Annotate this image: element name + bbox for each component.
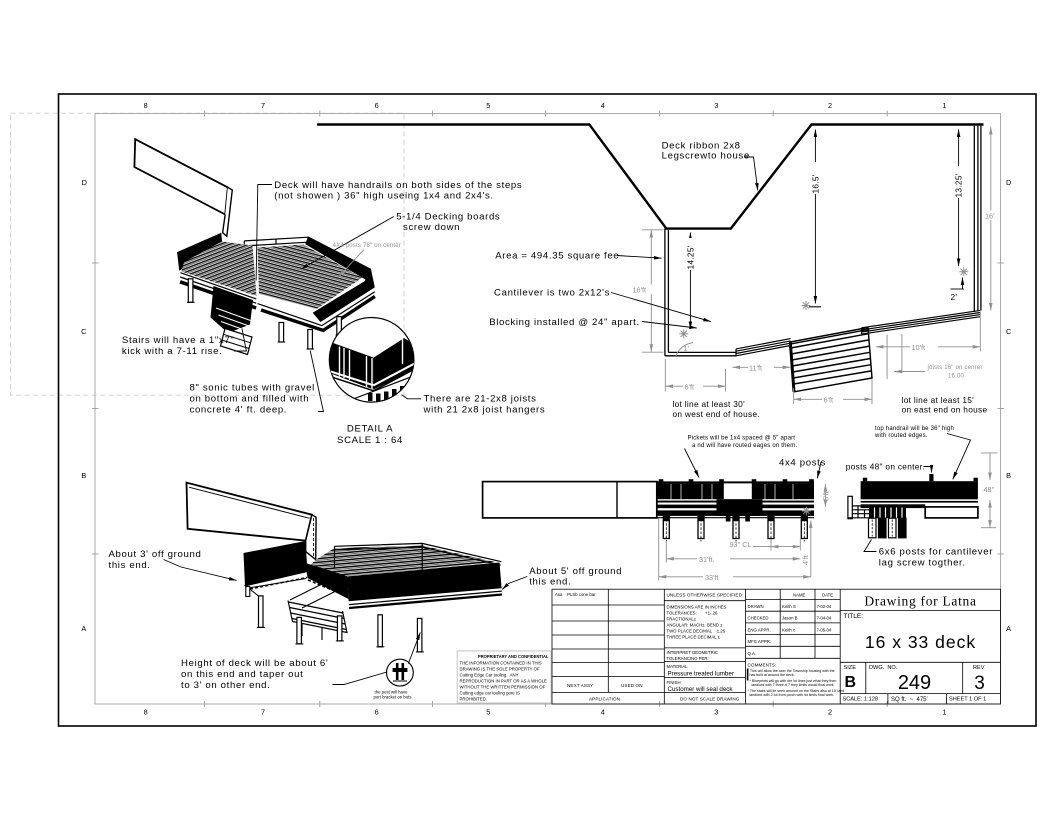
svg-text:port bracket on bots: port bracket on bots — [374, 695, 412, 700]
svg-text:WITHOUT THE WRITTEN PERMISSION: WITHOUT THE WRITTEN PERMISSION OF — [460, 684, 546, 689]
svg-text:16'ft: 16'ft — [633, 286, 647, 295]
svg-text:2': 2' — [951, 292, 958, 302]
svg-text:Stairs will have a 1"x7": Stairs will have a 1"x7" — [122, 335, 235, 346]
svg-text:Jason B: Jason B — [782, 616, 798, 621]
svg-text:screw down: screw down — [403, 222, 460, 233]
svg-text:Customer will seal deck: Customer will seal deck — [668, 686, 734, 693]
svg-text:5: 5 — [486, 708, 490, 717]
svg-text:REV: REV — [973, 665, 985, 671]
svg-text:to 3' on other end.: to 3' on other end. — [181, 680, 270, 691]
svg-text:16.5': 16.5' — [811, 174, 821, 193]
svg-text:1': 1' — [684, 344, 690, 353]
svg-text:48": 48" — [984, 485, 995, 494]
svg-text:DO NOT SCALE DRAWING: DO NOT SCALE DRAWING — [680, 697, 740, 702]
svg-text:Cantilever is two 2x12's: Cantilever is two 2x12's — [494, 288, 610, 299]
svg-text:NEXT ASSY: NEXT ASSY — [567, 683, 593, 688]
svg-text:Cutting edge car tooling gore: Cutting edge car tooling gore IS — [460, 690, 521, 695]
svg-text:DRAWING IS THE SOLE PROPERTY O: DRAWING IS THE SOLE PROPERTY OF — [460, 666, 540, 671]
svg-text:MFG APPR.: MFG APPR. — [748, 639, 771, 644]
svg-text:(not showen ) 36" high useing: (not showen ) 36" high useing 1x4 and 2x… — [274, 191, 493, 202]
svg-text:Keith c: Keith c — [782, 627, 796, 632]
svg-text:landlord with 2 lot front porc: landlord with 2 lot front porch with lot… — [748, 693, 835, 697]
svg-text:Q.A.: Q.A. — [748, 651, 757, 656]
svg-text:kick with a 7-11 rise.: kick with a 7-11 rise. — [122, 346, 222, 357]
svg-text:with 21 2x8 joist hangers: with 21 2x8 joist hangers — [423, 404, 546, 415]
svg-text:MATERIAL: MATERIAL — [667, 664, 689, 669]
svg-text:16': 16' — [985, 212, 995, 221]
svg-text:Legscrewto house: Legscrewto house — [662, 151, 750, 162]
svg-text:DATE: DATE — [822, 593, 833, 598]
svg-text:D: D — [82, 178, 87, 187]
svg-text:16 x 33 deck: 16 x 33 deck — [865, 632, 976, 652]
svg-text:About 5' off ground: About 5' off ground — [529, 566, 622, 577]
svg-text:lot line at least 15': lot line at least 15' — [902, 395, 975, 405]
svg-text:UNLESS OTHERWISE SPECIFIED:: UNLESS OTHERWISE SPECIFIED: — [667, 593, 744, 598]
svg-text:APPLICATION: APPLICATION — [589, 697, 620, 702]
svg-text:Pickets will be 1x4 spaced @ 5: Pickets will be 1x4 spaced @ 5" apart — [688, 436, 796, 442]
svg-text:TOLERANCES: +1-.26: TOLERANCES: +1-.26 — [667, 611, 719, 616]
svg-text:a nd will have routed eages on: a nd will have routed eages on them. — [692, 443, 797, 449]
svg-text:5-1/4 Decking boards: 5-1/4 Decking boards — [396, 211, 500, 222]
svg-text:posts 48" on center.: posts 48" on center. — [846, 461, 925, 471]
svg-text:1: 1 — [942, 101, 946, 110]
svg-text:Pressure treated lumber: Pressure treated lumber — [668, 671, 734, 678]
svg-text:TITLE:: TITLE: — [844, 613, 864, 620]
svg-text:with routed edges.: with routed edges. — [874, 433, 928, 439]
svg-text:the post will have: the post will have — [375, 689, 409, 694]
svg-text:3: 3 — [714, 101, 718, 110]
svg-text:8: 8 — [144, 101, 148, 110]
svg-text:SCALE 1 : 64: SCALE 1 : 64 — [337, 435, 403, 446]
svg-text:this end.: this end. — [109, 560, 151, 571]
svg-text:concrete 4' ft. deep.: concrete 4' ft. deep. — [190, 404, 288, 415]
svg-text:TOLERANCING PER:: TOLERANCING PER: — [667, 656, 709, 661]
svg-text:1: 1 — [942, 708, 946, 717]
svg-text:7: 7 — [261, 101, 265, 110]
svg-text:4'ft: 4'ft — [801, 555, 810, 565]
svg-text:Height of deck will be about 6: Height of deck will be about 6' — [181, 658, 328, 669]
svg-text:Deck will have handrails on bo: Deck will have handrails on both sides o… — [274, 180, 522, 191]
svg-text:Cutting Edge Car tooling. ANY: Cutting Edge Car tooling. ANY — [460, 672, 519, 677]
svg-text:SHEET 1 OF 1: SHEET 1 OF 1 — [949, 697, 986, 703]
svg-text:3: 3 — [974, 673, 985, 694]
svg-text:A: A — [81, 624, 86, 633]
svg-text:4: 4 — [601, 101, 605, 110]
svg-text:NAME: NAME — [793, 593, 806, 598]
svg-text:lot line at least 30': lot line at least 30' — [673, 399, 746, 409]
svg-text:D: D — [1006, 178, 1011, 187]
svg-text:REPRODUCTION IN PART OR AS A W: REPRODUCTION IN PART OR AS A WHOLE — [460, 678, 548, 683]
svg-text:6: 6 — [375, 101, 379, 110]
svg-text:C: C — [81, 327, 86, 336]
svg-text:FRACTIONAL±: FRACTIONAL± — [667, 617, 697, 622]
svg-text:7-05-04: 7-05-04 — [817, 627, 832, 632]
svg-text:Drawing for Latna: Drawing for Latna — [864, 594, 976, 609]
svg-text:THE INFORMATION CONTAINED IN T: THE INFORMATION CONTAINED IN THIS — [460, 660, 542, 665]
svg-text:on east end on house: on east end on house — [902, 405, 988, 415]
svg-text:5'ft: 5'ft — [822, 491, 831, 501]
svg-text:31'ft.: 31'ft. — [699, 555, 715, 564]
svg-text:DIMENSIONS ARE IN INCHES: DIMENSIONS ARE IN INCHES — [667, 605, 727, 610]
svg-text:16.00: 16.00 — [948, 374, 964, 380]
svg-text:2: 2 — [828, 708, 832, 717]
svg-text:joists 16" on cenrer: joists 16" on cenrer — [927, 365, 983, 371]
svg-text:COMMENTS:: COMMENTS: — [748, 663, 777, 668]
svg-text:DWG. NO.: DWG. NO. — [869, 665, 898, 671]
svg-text:top handrail will be 36" high: top handrail will be 36" high — [875, 426, 954, 432]
svg-text:2: 2 — [828, 101, 832, 110]
svg-text:6x6 posts for cantilever: 6x6 posts for cantilever — [879, 547, 993, 558]
svg-text:93" CL: 93" CL — [730, 540, 752, 549]
svg-text:4x4 posts: 4x4 posts — [779, 458, 826, 469]
svg-text:Keith S: Keith S — [782, 604, 796, 609]
svg-text:3: 3 — [714, 708, 718, 717]
svg-text:10'ft: 10'ft — [912, 343, 926, 352]
svg-text:on bottom and filled with: on bottom and filled with — [190, 393, 310, 404]
svg-text:on this end and taper out: on this end and taper out — [181, 669, 303, 680]
svg-text:About 3' off ground: About 3' off ground — [109, 549, 202, 560]
svg-text:5: 5 — [486, 101, 490, 110]
svg-text:B: B — [81, 471, 86, 480]
svg-text:B: B — [845, 674, 857, 691]
svg-text:A: A — [1006, 624, 1011, 633]
svg-text:C: C — [1006, 327, 1011, 336]
svg-text:6'ft: 6'ft — [824, 395, 834, 404]
svg-text:7: 7 — [261, 708, 265, 717]
svg-text:6: 6 — [375, 708, 379, 717]
svg-text:SCALE: 1:128: SCALE: 1:128 — [843, 697, 878, 703]
svg-text:249: 249 — [898, 672, 931, 694]
svg-text:landlord with 7 three-d 7 they: landlord with 7 three-d 7 they limits wo… — [750, 683, 834, 687]
svg-text:6'ft: 6'ft — [685, 382, 695, 391]
svg-text:on west end of house.: on west end of house. — [673, 409, 760, 419]
svg-text:There are 21-2x8 joists: There are 21-2x8 joists — [424, 393, 537, 404]
svg-text:33'ft: 33'ft — [705, 573, 719, 582]
svg-text:13.25': 13.25' — [954, 173, 964, 197]
svg-text:B: B — [1006, 471, 1011, 480]
svg-text:Blocking installed @ 24" apart: Blocking installed @ 24" apart. — [489, 317, 640, 328]
svg-text:DRAWN: DRAWN — [748, 604, 764, 609]
svg-text:PROHIBITED.: PROHIBITED. — [460, 696, 487, 701]
svg-text:14.25': 14.25' — [686, 245, 696, 269]
svg-text:INTERPRET GEOMETRIC: INTERPRET GEOMETRIC — [667, 650, 719, 655]
svg-text:ENG APPR.: ENG APPR. — [748, 627, 771, 632]
svg-text:THREE PLACE DECIMAL ±: THREE PLACE DECIMAL ± — [667, 635, 721, 640]
svg-text:ANGULAR: MACH± BEND ±: ANGULAR: MACH± BEND ± — [667, 623, 724, 628]
svg-text:8: 8 — [144, 708, 148, 717]
svg-text:7-02-04: 7-02-04 — [817, 604, 832, 609]
svg-text:11'ft: 11'ft — [749, 364, 762, 373]
svg-text:has built at around the deck.: has built at around the deck. — [748, 673, 795, 677]
svg-text:8" sonic tubes with gravel: 8" sonic tubes with gravel — [190, 382, 315, 393]
svg-text:SQ ft. ~ 475': SQ ft. ~ 475' — [891, 697, 928, 703]
svg-text:this end.: this end. — [529, 577, 571, 588]
svg-text:USED ON: USED ON — [621, 683, 643, 688]
svg-text:4: 4 — [601, 708, 605, 717]
svg-text:lag screw togther.: lag screw togther. — [879, 558, 966, 569]
svg-text:7-04-04: 7-04-04 — [817, 616, 832, 621]
svg-text:Area = 494.35 square fee: Area = 494.35 square fee — [495, 251, 619, 262]
svg-text:TWO PLACE DECIMAL ±.26: TWO PLACE DECIMAL ±.26 — [667, 629, 726, 634]
svg-text:4X4 posts 78" on center: 4X4 posts 78" on center — [333, 243, 401, 249]
svg-text:DETAIL A: DETAIL A — [347, 424, 393, 435]
svg-text:CHECKED: CHECKED — [748, 616, 769, 621]
svg-text:Asa PLSb cone bar: Asa PLSb cone bar — [555, 592, 596, 597]
svg-text:SIZE: SIZE — [844, 665, 857, 671]
svg-text:PROPRIETARY AND CONFIDENTIAL: PROPRIETARY AND CONFIDENTIAL — [478, 654, 549, 659]
svg-text:FINISH: FINISH — [667, 680, 681, 685]
